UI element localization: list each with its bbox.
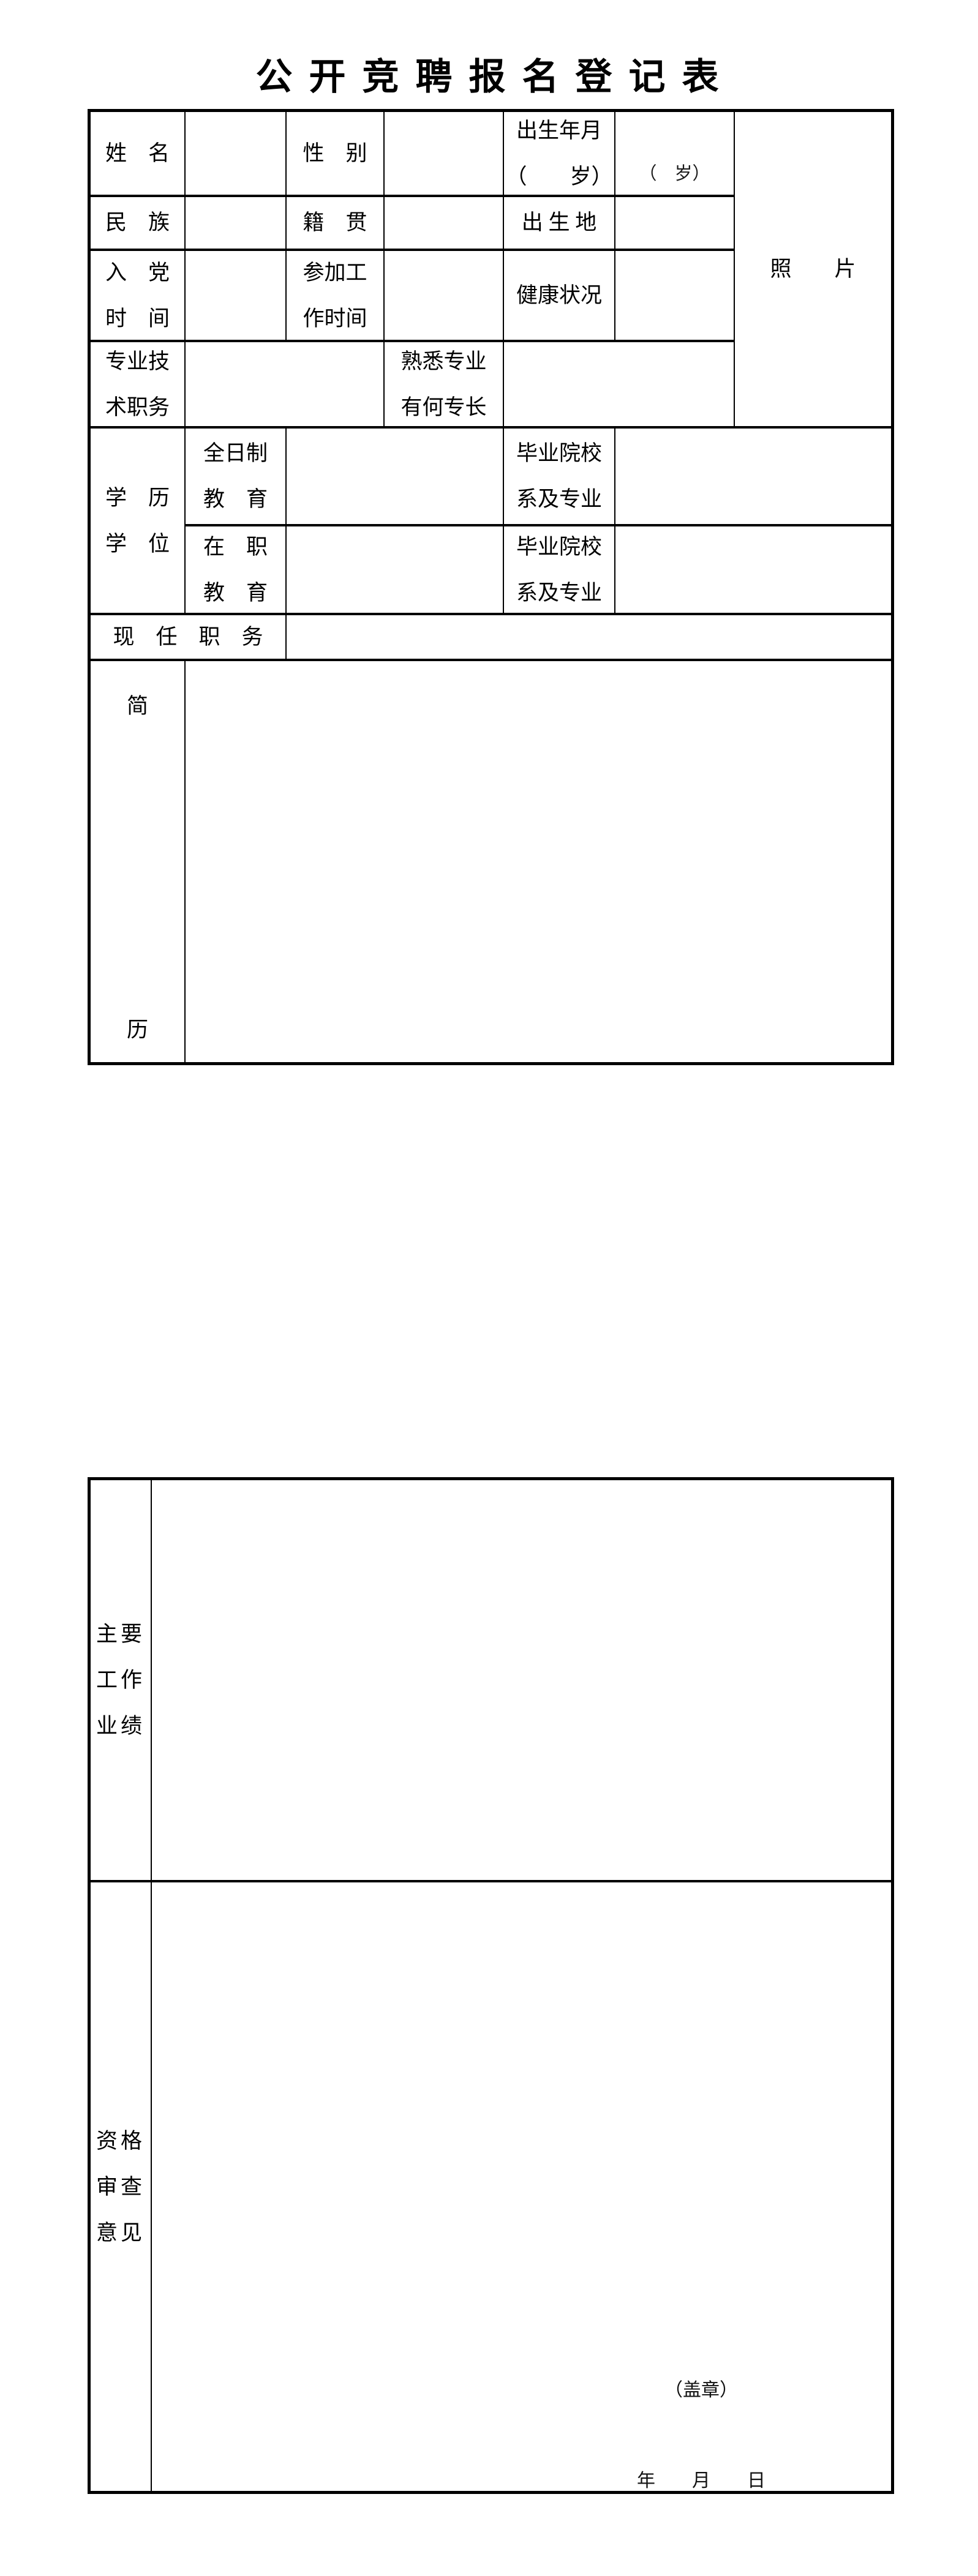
field-specialty[interactable] bbox=[504, 342, 735, 429]
label-professional-title: 专业技 术职务 bbox=[91, 342, 186, 429]
age-hint: （ 岁） bbox=[639, 162, 710, 186]
label-name: 姓 名 bbox=[91, 112, 186, 197]
field-onjob-education[interactable] bbox=[287, 526, 504, 615]
label-education-degree: 学 历 学 位 bbox=[91, 429, 186, 615]
seal-date-block: （盖章） 年 月 日 bbox=[599, 2337, 803, 2534]
label-gender: 性 别 bbox=[287, 112, 385, 197]
photo-label: 照 片 bbox=[770, 257, 856, 282]
label-health-status: 健康状况 bbox=[504, 251, 615, 342]
field-party-join-time[interactable] bbox=[186, 251, 287, 342]
label-resume: 简 历 bbox=[91, 661, 186, 1062]
label-birthdate-age: 出生年月 （ 岁） bbox=[504, 112, 615, 197]
label-qualification-review: 资格 审查 意见 bbox=[91, 1882, 152, 2491]
photo-cell[interactable]: 照 片 bbox=[735, 112, 891, 429]
field-name[interactable] bbox=[186, 112, 287, 197]
date-hint: 年 月 日 bbox=[599, 2470, 803, 2492]
review-table: 主要 工作 业绩 资格 审查 意见 （盖章） 年 月 日 bbox=[88, 1477, 894, 2494]
label-fulltime-school: 毕业院校 系及专业 bbox=[504, 429, 615, 526]
field-gender[interactable] bbox=[385, 112, 504, 197]
registration-table: 姓 名 性 别 出生年月 （ 岁） （ 岁） 照 片 民 族 籍 贯 出 生 地… bbox=[88, 109, 894, 1065]
form-title: 公 开 竞 聘 报 名 登 记 表 bbox=[0, 55, 978, 99]
label-current-post: 现 任 职 务 bbox=[91, 615, 287, 661]
field-birthplace[interactable] bbox=[615, 197, 735, 251]
label-main-achievements: 主要 工作 业绩 bbox=[91, 1480, 152, 1882]
label-party-join-time: 入 党 时 间 bbox=[91, 251, 186, 342]
seal-hint: （盖章） bbox=[599, 2379, 803, 2401]
field-onjob-school[interactable] bbox=[615, 526, 891, 615]
label-onjob-school: 毕业院校 系及专业 bbox=[504, 526, 615, 615]
field-professional-title[interactable] bbox=[186, 342, 385, 429]
label-fulltime-education: 全日制 教 育 bbox=[186, 429, 287, 526]
field-qualification-review[interactable]: （盖章） 年 月 日 bbox=[152, 1882, 891, 2491]
field-birthdate-age[interactable]: （ 岁） bbox=[615, 112, 735, 197]
field-ethnicity[interactable] bbox=[186, 197, 287, 251]
field-resume[interactable] bbox=[186, 661, 891, 1062]
label-specialty: 熟悉专业 有何专长 bbox=[385, 342, 504, 429]
field-native-place[interactable] bbox=[385, 197, 504, 251]
label-onjob-education: 在 职 教 育 bbox=[186, 526, 287, 615]
field-current-post[interactable] bbox=[287, 615, 891, 661]
label-native-place: 籍 贯 bbox=[287, 197, 385, 251]
label-ethnicity: 民 族 bbox=[91, 197, 186, 251]
label-birthplace: 出 生 地 bbox=[504, 197, 615, 251]
label-work-start-time: 参加工 作时间 bbox=[287, 251, 385, 342]
field-work-start-time[interactable] bbox=[385, 251, 504, 342]
field-fulltime-school[interactable] bbox=[615, 429, 891, 526]
field-health-status[interactable] bbox=[615, 251, 735, 342]
field-main-achievements[interactable] bbox=[152, 1480, 891, 1882]
field-fulltime-education[interactable] bbox=[287, 429, 504, 526]
